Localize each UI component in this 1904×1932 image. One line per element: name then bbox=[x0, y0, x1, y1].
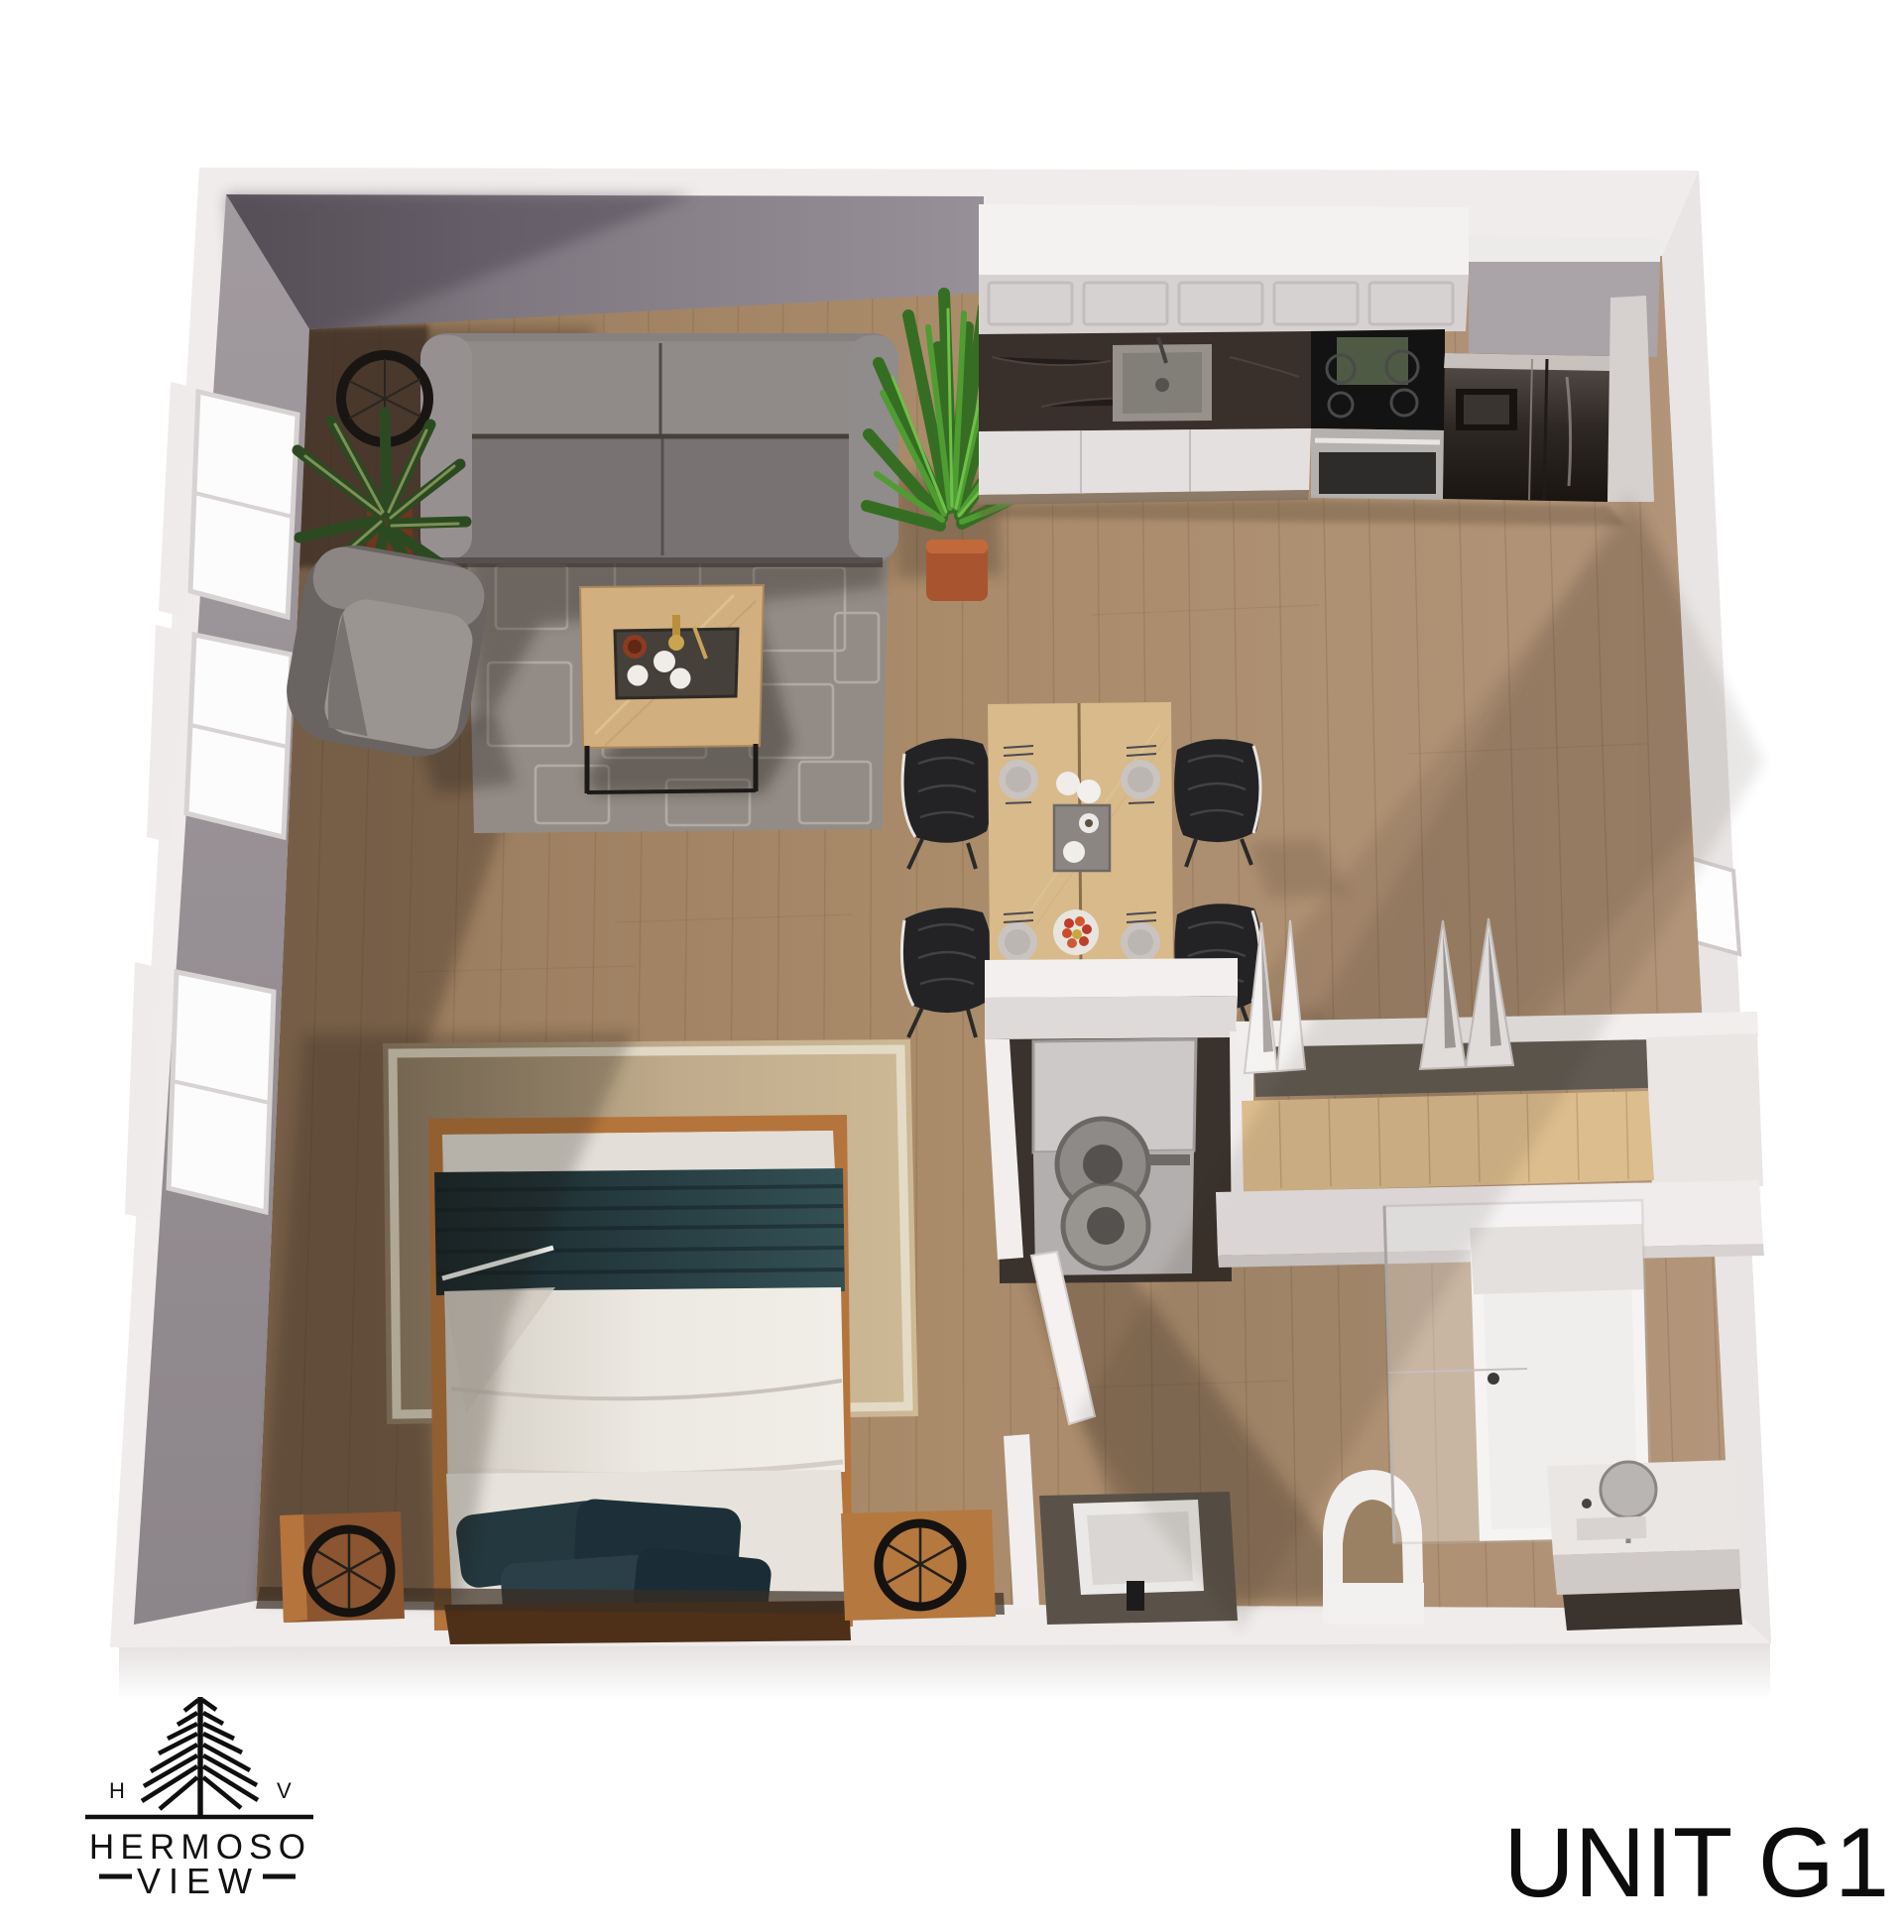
svg-text:UNIT G1: UNIT G1 bbox=[1503, 1807, 1889, 1917]
svg-text:V: V bbox=[277, 1778, 292, 1803]
svg-text:VIEW: VIEW bbox=[137, 1861, 260, 1901]
svg-text:H: H bbox=[109, 1778, 125, 1803]
